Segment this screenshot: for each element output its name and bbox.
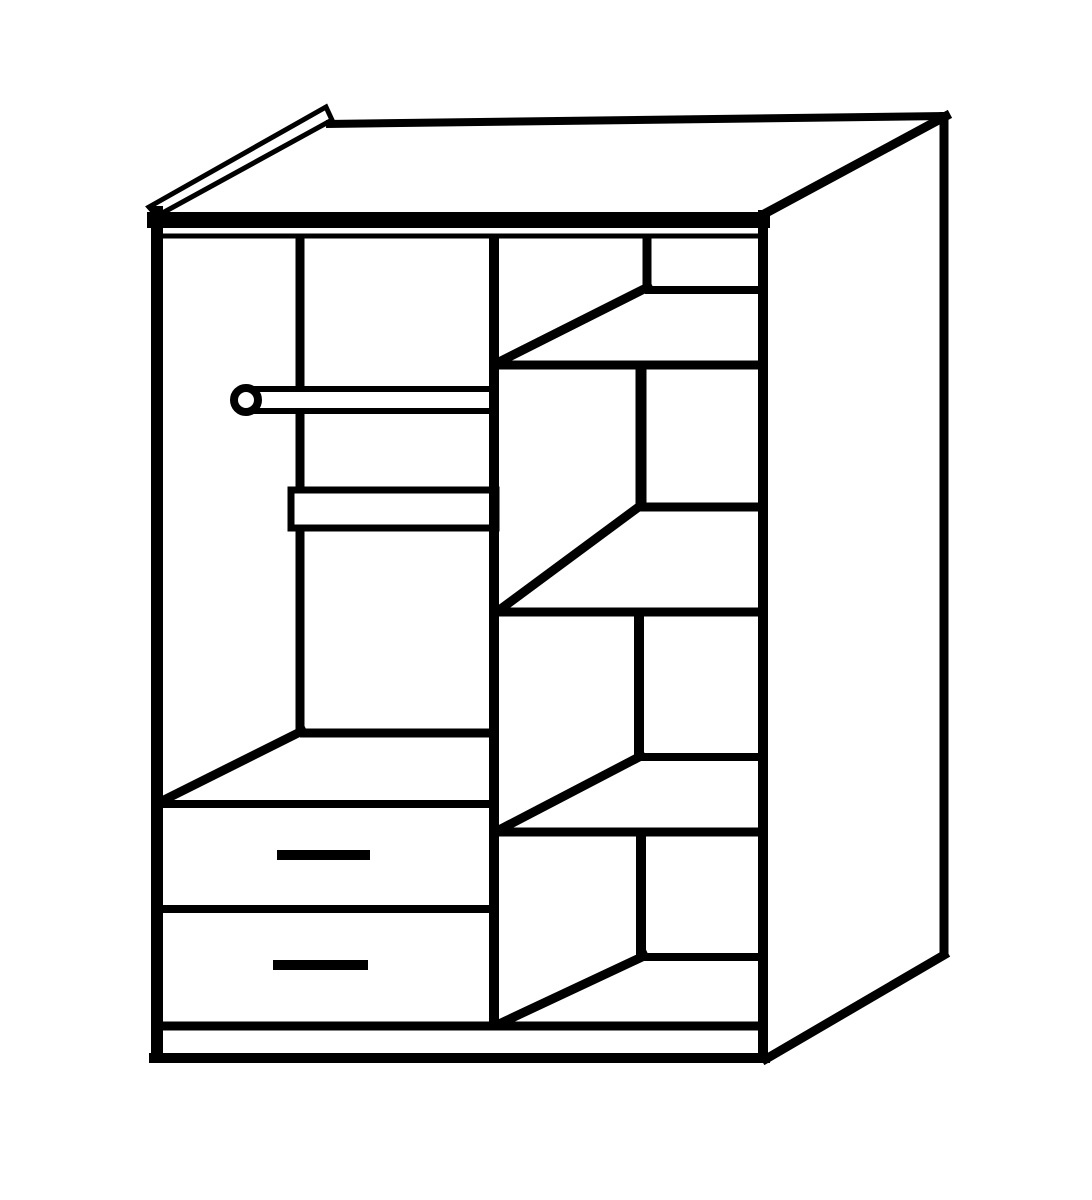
wardrobe-diagram: [0, 0, 1092, 1200]
diagram-background: [0, 0, 1092, 1200]
left-column-shelf-board: [291, 490, 496, 528]
hanging-rail-bar: [248, 389, 496, 411]
hanging-rail-end-cap: [234, 388, 258, 412]
wardrobe-diagram-canvas: [0, 0, 1092, 1200]
